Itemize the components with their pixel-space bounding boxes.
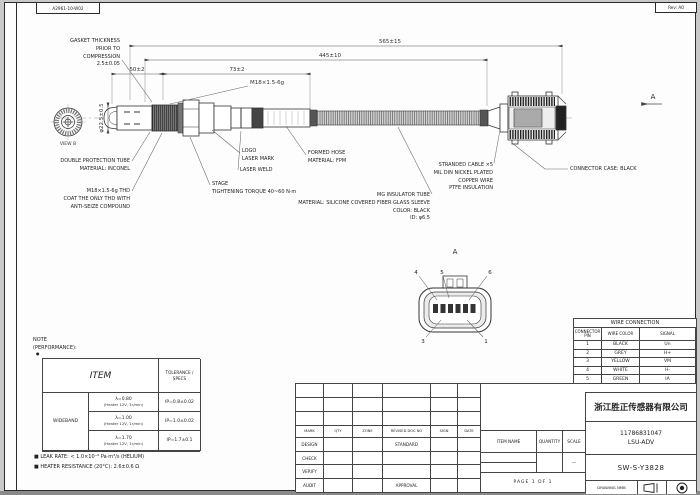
rev-row-design: DESIGN <box>296 438 324 452</box>
leak-rate-note: ■ LEAK RATE: < 1.0×10⁻⁶ Pa·m³/s (HELIUM) <box>34 454 144 462</box>
protection-tube <box>117 106 152 130</box>
connector-front-cap <box>500 104 508 132</box>
item-subcells <box>481 453 537 473</box>
wire-color: GREY <box>602 350 640 359</box>
perf-spec-2: IP=1.0±0.02 <box>159 412 201 431</box>
end-view-caption: VIEW B <box>60 141 76 147</box>
scale-value: — <box>563 453 586 473</box>
wire-signal: H+ <box>640 350 696 359</box>
dim-73: 73±2 <box>229 67 244 73</box>
view-a-letter: A <box>651 93 656 101</box>
part-number-cell: 11786831047 LSU-ADV <box>586 422 696 455</box>
wire-col-color: WIRE COLOR <box>602 328 640 341</box>
perf-item-header: ITEM <box>43 359 159 393</box>
sensor-body <box>199 103 214 133</box>
pin-callout-3: 3 <box>421 339 425 345</box>
wire-signal: VM <box>640 358 696 367</box>
body-step <box>214 106 231 130</box>
dim-overall: 565±15 <box>379 39 402 45</box>
drawing-number-label: DRAWING NMB <box>586 481 638 494</box>
drawing-number: SW-S-Y3828 <box>586 455 696 481</box>
item-name-label: ITEM NAME <box>481 431 537 453</box>
perf-group: WIDEBAND <box>43 393 89 451</box>
formed-hose-label: FORMED HOSE MATERIAL: FPM <box>308 150 346 166</box>
dim-50: 50±2 <box>129 67 144 73</box>
crimp-band <box>252 108 263 128</box>
braided-sleeve <box>310 111 488 125</box>
rev-standard: STANDARD <box>383 438 431 452</box>
wire-signal: H- <box>640 367 696 376</box>
thread-note-label: M18×1.5-6g THD COAT THE ONLY THD WITH AN… <box>40 188 130 211</box>
revision-table: MARK QTY ZONE REVISED DOC NO SIGN DATE D… <box>295 383 480 492</box>
rev-header-sign: SIGN <box>431 426 458 438</box>
connector-face-view: A 4 5 6 3 1 <box>414 248 492 345</box>
wire-color: YELLOW <box>602 358 640 367</box>
note-title: NOTE <box>33 337 47 343</box>
rev-header-qty: QTY <box>324 426 353 438</box>
boot <box>488 107 500 129</box>
dim-thread: M18×1.5-6g <box>250 80 284 86</box>
perf-cond-3: λ=1.70 (Heater 12V, 1r/min) <box>89 431 159 451</box>
logo-label: LOGO LASER MARK <box>242 148 274 164</box>
pin-callout-4: 4 <box>414 270 418 276</box>
part-number: 11786831047 <box>620 429 662 438</box>
connector-latch <box>556 106 566 130</box>
dim-diameter: φ22.5±0.5 <box>99 103 105 133</box>
wire-col-pin: CONNECTOR PIN <box>574 328 602 341</box>
formed-hose <box>263 109 310 127</box>
wire-pin: 4 <box>574 367 602 376</box>
perf-spec-1: IP=0.8±0.02 <box>159 393 201 412</box>
rev-row-check: CHECK <box>296 452 324 466</box>
wire-color: WHITE <box>602 367 640 376</box>
wire-pin: 3 <box>574 358 602 367</box>
wire-signal: Un <box>640 341 696 350</box>
thread-section <box>152 105 178 131</box>
face-view-title: A <box>453 248 458 256</box>
drawing-sheet: A2961-10-W02 Rev: A0 <box>0 0 700 495</box>
rev-approval: APPROVAL <box>383 479 431 493</box>
sensor-end-view <box>50 104 86 140</box>
perf-spec-3: IP=1.7±0.1 <box>159 431 201 451</box>
sensor-side-view <box>104 92 566 144</box>
connector-case-label: CONNECTOR CASE: BLACK <box>570 166 637 174</box>
perf-cond-2: λ=1.00 (Heater 12V, 1r/min) <box>89 412 159 431</box>
gasket-label: GASKET THICKNESS PRIOR TO COMPRESSION 2.… <box>40 38 120 69</box>
wire-col-signal: SIGNAL <box>640 328 696 341</box>
scale-label: SCALE <box>563 431 586 453</box>
pin-callout-1: 1 <box>484 339 488 345</box>
performance-table: ITEM TOLERANCE / SPECS WIDEBAND λ=0.80 (… <box>42 358 200 452</box>
pin-callout-6: 6 <box>488 270 492 276</box>
note-bullet: ● <box>36 352 40 357</box>
double-protection-label: DOUBLE PROTECTION TUBE MATERIAL: INCONEL <box>40 158 130 174</box>
wire-pin: 2 <box>574 350 602 359</box>
rev-header-doc: REVISED DOC NO <box>383 426 431 438</box>
rev-header-mark: MARK <box>296 426 324 438</box>
rev-row-verify: VERIFY <box>296 465 324 479</box>
page-indicator: PAGE 1 OF 1 <box>481 473 586 493</box>
hex-nut <box>183 100 199 136</box>
tip-dome <box>104 107 117 129</box>
laser-weld-label: LASER WELD <box>240 167 272 175</box>
company-name: 浙江胜正传感器有限公司 <box>586 393 696 422</box>
perf-cond-1: λ=0.80 (Heater 12V, 1r/min) <box>89 393 159 412</box>
wire-color: BLACK <box>602 341 640 350</box>
stranded-cable-label: STRANDED CABLE ×5 MIL DIN NICKEL PLATED … <box>363 162 493 193</box>
rev-row-audit: AUDIT <box>296 479 324 493</box>
wire-pin: 1 <box>574 341 602 350</box>
heater-resistance-note: ■ HEATER RESISTANCE (20°C): 2.6±0.6 Ω <box>34 464 139 472</box>
title-block: 浙江胜正传感器有限公司 11786831047 LSU-ADV SW-S-Y38… <box>585 392 697 492</box>
quantity-label: QUANTITY <box>537 431 563 453</box>
insulator-label: MG INSULATOR TUBE MATERIAL: SILICONE COV… <box>250 192 430 223</box>
projection-trapezoid-icon <box>638 481 667 494</box>
wire-table-title: WIRE CONNECTION <box>574 319 696 328</box>
projection-circles-icon <box>667 481 696 494</box>
pin-callout-5: 5 <box>440 270 444 276</box>
sensor-type: LSU-ADV <box>628 438 654 447</box>
rev-header-zone: ZONE <box>353 426 383 438</box>
dim-to-connector: 445±10 <box>319 53 342 59</box>
item-scale-table: ITEM NAME QUANTITY SCALE — PAGE 1 OF 1 <box>480 430 585 492</box>
rev-header-date: DATE <box>458 426 481 438</box>
gasket-washer <box>178 103 183 133</box>
perf-tolerance-header: TOLERANCE / SPECS <box>159 359 201 393</box>
